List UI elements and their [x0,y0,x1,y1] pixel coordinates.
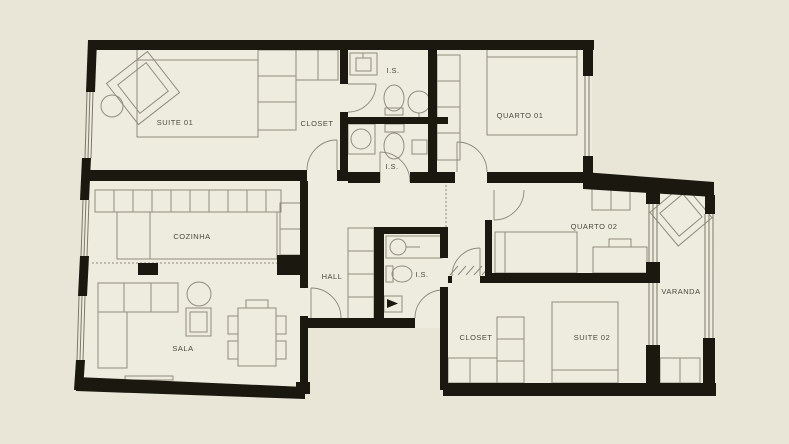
room-label-suite-01: SUITE 01 [157,118,194,127]
floor-plan: SUITE 01 CLOSET I.S. I.S. QUARTO 01 COZI… [0,0,789,444]
room-label-is-1: I.S. [386,66,399,75]
floor-plan-page: SUITE 01 CLOSET I.S. I.S. QUARTO 01 COZI… [0,0,789,444]
room-label-is-2: I.S. [385,162,398,171]
room-label-is-3: I.S. [415,270,428,279]
room-label-sala: SALA [172,344,193,353]
room-label-cozinha: COZINHA [173,232,210,241]
room-label-suite-02: SUITE 02 [574,333,611,342]
room-label-closet-2: CLOSET [459,333,492,342]
apartment-floor [78,40,716,394]
room-label-varanda: VARANDA [661,287,700,296]
room-label-quarto-02: QUARTO 02 [571,222,618,231]
room-label-closet-1: CLOSET [300,119,333,128]
room-label-hall: HALL [322,272,343,281]
room-label-quarto-01: QUARTO 01 [497,111,544,120]
